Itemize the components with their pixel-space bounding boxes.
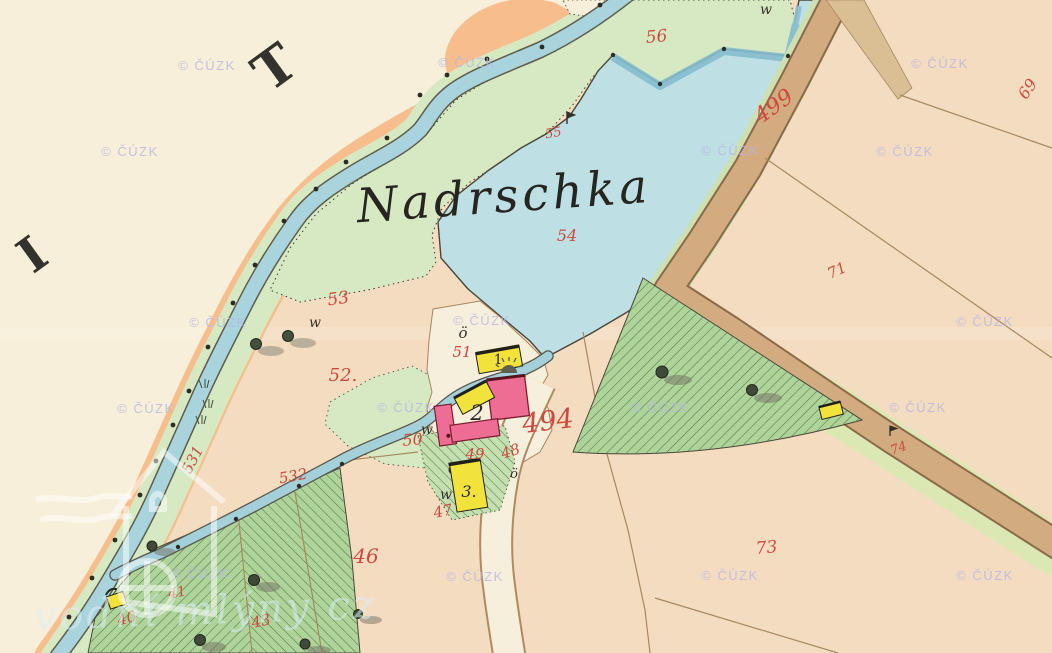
cuzk-watermark: © ČÚZK — [438, 55, 496, 70]
parcel-number-46: 46 — [352, 544, 379, 568]
meadow-mark-w: w — [760, 2, 772, 18]
cuzk-watermark: © ČÚZK — [377, 400, 435, 415]
parcel-number-51: 51 — [452, 343, 471, 361]
cuzk-watermark: © ČÚZK — [701, 143, 759, 158]
parcel-number-56: 56 — [645, 26, 668, 48]
house-number-2: 2 — [469, 401, 483, 425]
cuzk-watermark: © ČÚZK — [453, 313, 511, 328]
landuse-mark-o: ö — [510, 467, 518, 482]
cuzk-watermark: © ČÚZK — [701, 568, 759, 583]
cuzk-watermark: © ČÚZK — [956, 568, 1014, 583]
cuzk-watermark: © ČÚZK — [956, 314, 1014, 329]
cuzk-watermark: © ČÚZK — [117, 401, 175, 416]
meadow-mark-w: w — [309, 315, 321, 331]
meadow-mark-w: w — [440, 487, 452, 503]
cuzk-watermark: © ČÚZK — [876, 144, 934, 159]
parcel-number-494: 494 — [520, 403, 576, 440]
cuzk-watermark: © ČÚZK — [101, 144, 159, 159]
parcel-number-54: 54 — [557, 226, 577, 245]
cuzk-watermark: © ČÚZK — [911, 56, 969, 71]
parcel-number-53: 53 — [326, 288, 350, 311]
cuzk-watermark: © ČÚZK — [189, 315, 247, 330]
house-number-3: 3. — [461, 482, 476, 501]
cuzk-watermark: © ČÚZK — [889, 400, 947, 415]
meadow-mark-w: w — [421, 422, 433, 438]
parcel-number-49: 49 — [464, 445, 485, 463]
parcel-number-73: 73 — [755, 537, 778, 559]
cuzk-watermark: © ČÚZK — [178, 58, 236, 73]
cuzk-watermark: © ČÚZK — [446, 569, 504, 584]
parcel-number-52: 52. — [329, 365, 358, 386]
cadastral-map[interactable]: 40 41 43 46 47 48 49 50 51 52. 53 54 55 … — [0, 0, 1052, 653]
parcel-number-55: 55 — [544, 125, 563, 143]
cadastral-map-viewport[interactable]: 40 41 43 46 47 48 49 50 51 52. 53 54 55 … — [0, 0, 1052, 653]
cuzk-watermark: © ČÚZK — [171, 566, 229, 581]
cuzk-watermark: © ČÚZK — [631, 400, 689, 415]
